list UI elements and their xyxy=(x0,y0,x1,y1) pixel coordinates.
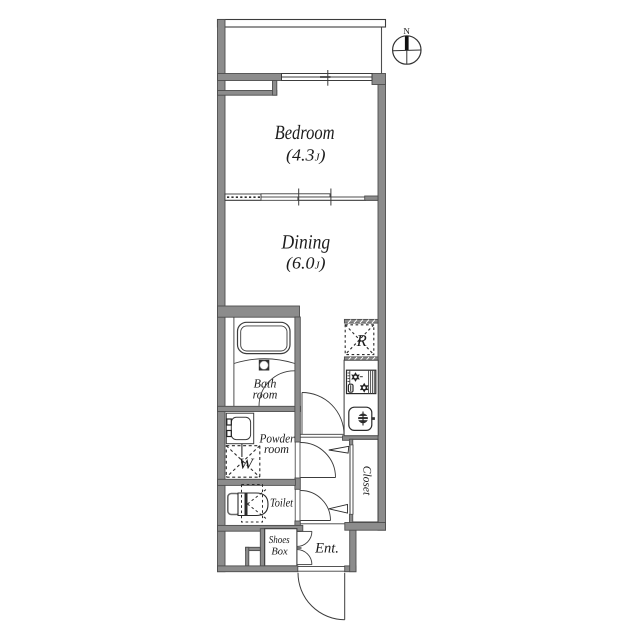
svg-text:R: R xyxy=(356,331,367,350)
svg-text:Dining: Dining xyxy=(281,232,331,254)
svg-text:room: room xyxy=(264,442,289,456)
svg-text:N: N xyxy=(403,26,410,36)
svg-text:Shoes: Shoes xyxy=(269,535,290,546)
svg-text:W: W xyxy=(239,457,255,473)
svg-text:Ent.: Ent. xyxy=(314,540,339,556)
svg-text:(6.0J): (6.0J) xyxy=(286,253,326,272)
svg-text:Toilet: Toilet xyxy=(270,495,294,509)
svg-text:Closet: Closet xyxy=(361,466,373,496)
svg-text:Bedroom: Bedroom xyxy=(275,122,335,144)
svg-text:Box: Box xyxy=(271,547,288,558)
svg-text:(4.3J): (4.3J) xyxy=(286,145,326,164)
svg-text:room: room xyxy=(253,388,278,402)
